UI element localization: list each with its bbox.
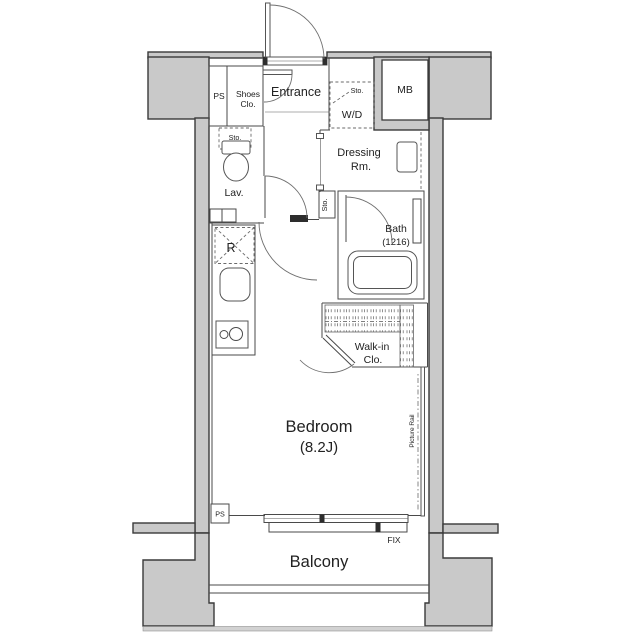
entrance-sill-cap-right bbox=[323, 57, 328, 65]
label-sto-wd: Sto. bbox=[351, 86, 364, 95]
walkin-hanger-band-top bbox=[325, 305, 400, 332]
vanity-counter bbox=[210, 209, 236, 222]
floorplan-page: PS Shoes Clo. Entrance Sto. W/D MB Dress… bbox=[0, 0, 640, 640]
label-fridge: R bbox=[226, 241, 235, 255]
label-mb: MB bbox=[397, 84, 413, 96]
label-walkin-2: Clo. bbox=[364, 354, 383, 366]
label-ps-top: PS bbox=[213, 91, 225, 101]
wall-right-ledge bbox=[443, 524, 498, 533]
floorplan-svg: PS Shoes Clo. Entrance Sto. W/D MB Dress… bbox=[0, 0, 640, 640]
bedroom-right-wall bbox=[421, 367, 425, 516]
label-bath-2: (1216) bbox=[382, 237, 409, 248]
wall-left-strip bbox=[195, 118, 209, 533]
window-lower-track bbox=[269, 523, 407, 533]
window-sash-mark-2 bbox=[376, 523, 381, 533]
label-shoes-2: Clo. bbox=[240, 99, 255, 109]
label-dressing-1: Dressing bbox=[337, 147, 380, 159]
wall-left-ledge bbox=[133, 523, 195, 533]
hall-door-leaf bbox=[263, 70, 292, 75]
bathtub-inner bbox=[354, 257, 412, 289]
walkin-hanger-band-right bbox=[400, 305, 414, 367]
label-picture-rail: Picture Rail bbox=[409, 414, 416, 448]
label-walkin-1: Walk-in bbox=[355, 341, 390, 353]
wall-bottom-left-block bbox=[143, 533, 214, 626]
balcony-rail-lines bbox=[209, 585, 429, 593]
walkin-door-leaf bbox=[323, 335, 355, 366]
stove-icon bbox=[216, 321, 248, 348]
label-fix: FIX bbox=[387, 535, 401, 545]
kitchen-sink-icon bbox=[220, 268, 250, 301]
front-door-leaf bbox=[266, 3, 271, 57]
window-sash-mark-1 bbox=[320, 515, 325, 523]
bath-counter bbox=[413, 199, 421, 243]
wall-segment-dark bbox=[290, 215, 308, 222]
toilet-bowl-icon bbox=[224, 153, 249, 181]
wd-storage-dashed-line bbox=[333, 92, 349, 103]
wall-bottom-right-block bbox=[425, 533, 492, 626]
label-balcony: Balcony bbox=[290, 553, 349, 571]
toilet-tank-icon bbox=[222, 141, 250, 154]
label-shoes-1: Shoes bbox=[236, 89, 260, 99]
label-sto-toilet: Sto. bbox=[229, 133, 242, 142]
window-mullions bbox=[322, 515, 378, 533]
front-door-arc bbox=[270, 5, 324, 59]
lav-door-arc bbox=[265, 176, 307, 218]
balcony-bottom-edge bbox=[143, 627, 492, 632]
walkin-door-arc bbox=[300, 360, 354, 373]
label-dressing-2: Rm. bbox=[351, 161, 371, 173]
label-wd: W/D bbox=[342, 109, 363, 121]
label-entrance: Entrance bbox=[271, 85, 321, 99]
dressing-left-wall bbox=[320, 130, 330, 192]
label-bath-1: Bath bbox=[385, 223, 407, 235]
door-jamb-top bbox=[317, 134, 324, 139]
label-lav: Lav. bbox=[224, 187, 243, 199]
label-sto-hall: Sto. bbox=[320, 199, 329, 212]
label-bedroom-1: Bedroom bbox=[286, 418, 353, 436]
label-bedroom-2: (8.2J) bbox=[300, 439, 338, 456]
entrance-sill-cap-left bbox=[263, 57, 268, 65]
washbasin-icon bbox=[397, 142, 417, 172]
wall-right-strip bbox=[429, 118, 443, 533]
wall-top-right-block bbox=[429, 57, 491, 119]
wall-top-left-block bbox=[148, 57, 209, 119]
bedroom-door-arc bbox=[259, 222, 317, 280]
walls-group bbox=[133, 52, 498, 626]
door-jamb-bottom bbox=[317, 185, 324, 190]
label-ps-bottom: PS bbox=[215, 510, 225, 519]
